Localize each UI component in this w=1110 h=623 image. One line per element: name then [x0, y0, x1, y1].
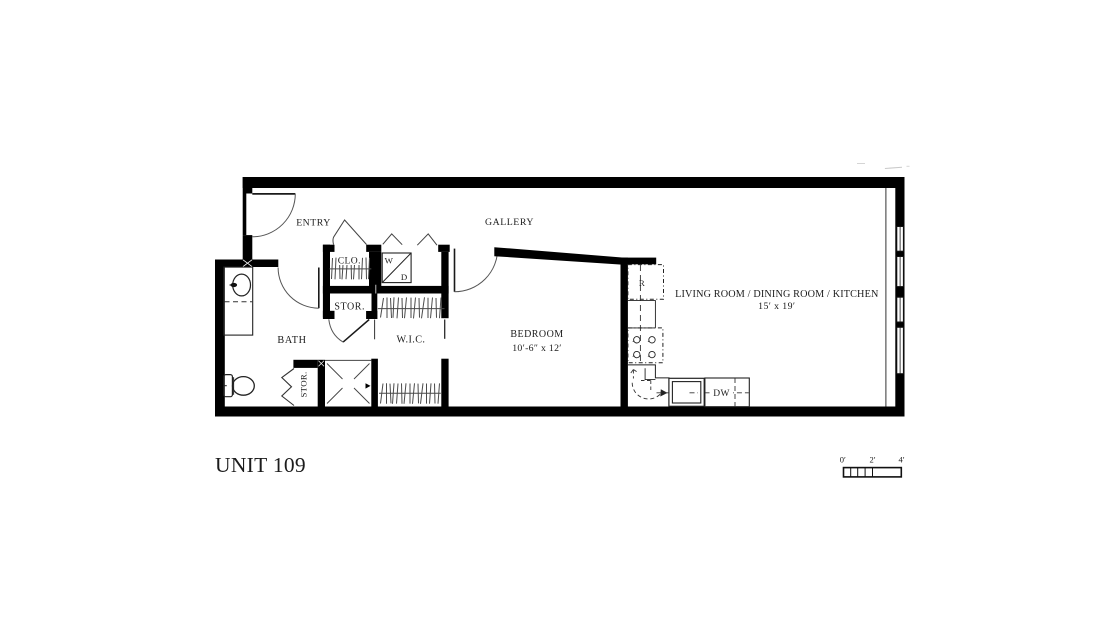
svg-text:UNIT 109: UNIT 109 [215, 453, 306, 477]
svg-text:DW: DW [713, 389, 729, 399]
svg-text:R: R [639, 278, 645, 288]
svg-text:LIVING ROOM / DINING ROOM / KI: LIVING ROOM / DINING ROOM / KITCHEN [675, 289, 879, 300]
svg-text:ENTRY: ENTRY [296, 218, 331, 229]
svg-text:2′: 2′ [869, 455, 875, 465]
svg-text:W.I.C.: W.I.C. [396, 334, 425, 345]
svg-text:0′: 0′ [840, 455, 846, 465]
svg-text:BEDROOM: BEDROOM [510, 329, 563, 340]
svg-text:4′: 4′ [898, 455, 904, 465]
svg-text:CLO.: CLO. [338, 255, 361, 266]
svg-text:D: D [401, 272, 407, 282]
svg-text:10′-6″ x 12′: 10′-6″ x 12′ [512, 343, 562, 354]
svg-text:15′ x 19′: 15′ x 19′ [758, 301, 795, 312]
svg-text:STOR.: STOR. [334, 302, 365, 313]
svg-text:STOR.: STOR. [298, 371, 308, 397]
svg-text:W: W [385, 256, 394, 266]
svg-text:GALLERY: GALLERY [485, 217, 534, 228]
svg-text:BATH: BATH [277, 335, 306, 346]
